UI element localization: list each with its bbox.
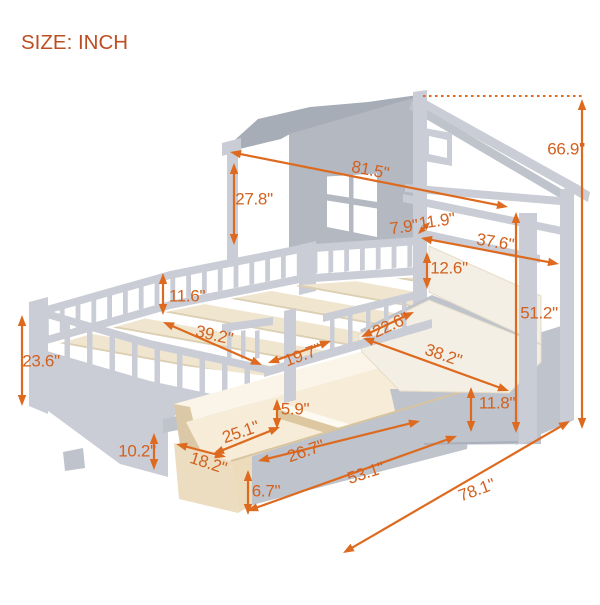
- svg-text:11.8": 11.8": [479, 393, 516, 412]
- svg-text:10.2": 10.2": [118, 441, 156, 460]
- svg-text:37.6": 37.6": [475, 230, 515, 255]
- svg-text:27.8": 27.8": [235, 189, 273, 208]
- svg-text:6.7": 6.7": [252, 481, 281, 500]
- svg-text:51.2": 51.2": [520, 303, 558, 322]
- svg-text:5.9": 5.9": [281, 399, 310, 418]
- svg-text:12.6": 12.6": [430, 258, 468, 277]
- svg-text:23.6": 23.6": [22, 351, 60, 370]
- svg-text:78.1": 78.1": [456, 475, 498, 506]
- svg-text:66.9": 66.9": [547, 139, 585, 158]
- svg-text:11.6": 11.6": [169, 286, 206, 305]
- svg-text:11.9": 11.9": [418, 209, 457, 233]
- svg-text:SIZE: INCH: SIZE: INCH: [21, 31, 128, 54]
- svg-text:7.9": 7.9": [388, 216, 419, 239]
